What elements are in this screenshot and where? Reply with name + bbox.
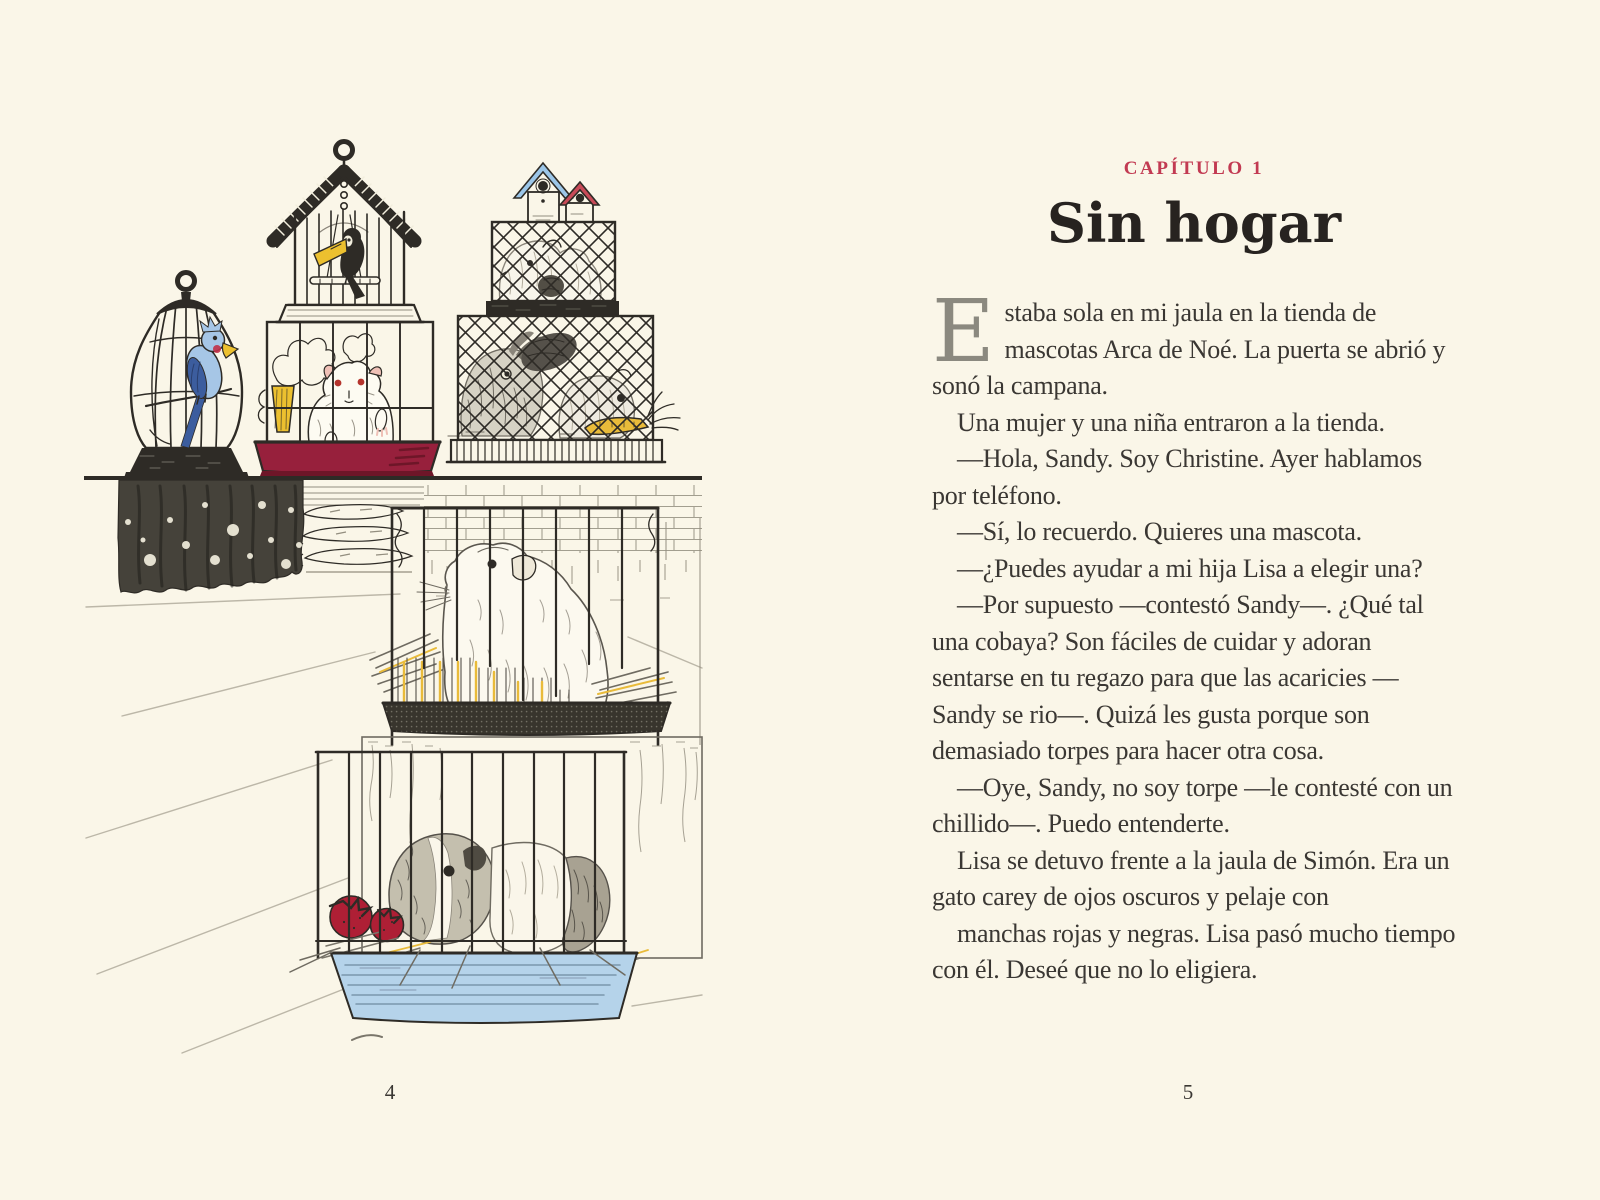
chapter-title: Sin hogar	[932, 194, 1456, 253]
paragraph: —¿Puedes ayudar a mi hija Lisa a elegir …	[932, 551, 1456, 588]
guinea-pig-cage-bottom	[290, 752, 648, 1040]
paragraph: —Hola, Sandy. Soy Christine. Ayer hablam…	[932, 441, 1456, 514]
chapter-page: CAPÍTULO 1 Sin hogar Estaba sola en mi j…	[932, 150, 1456, 989]
birdhouses	[514, 163, 599, 222]
curtain	[118, 480, 304, 593]
body-text: Estaba sola en mi jaula en la tienda de …	[932, 295, 1456, 989]
page-number-right: 5	[1158, 1080, 1218, 1105]
page-number-left: 4	[360, 1080, 420, 1105]
paragraph: Estaba sola en mi jaula en la tienda de …	[932, 295, 1456, 405]
paragraph: manchas rojas y negras. Lisa pasó mucho …	[932, 916, 1456, 989]
drop-cap: E	[932, 300, 995, 368]
paragraph: —Sí, lo recuerdo. Quieres una mascota.	[932, 514, 1456, 551]
rabbit-cages	[447, 163, 680, 462]
paragraph: —Por supuesto —contestó Sandy—. ¿Qué tal…	[932, 587, 1456, 770]
paragraph: Lisa se detuvo frente a la jaula de Simó…	[932, 843, 1456, 916]
chapter-kicker: CAPÍTULO 1	[932, 158, 1456, 180]
parrot-cage	[124, 273, 249, 479]
stacked-bedding	[299, 505, 413, 572]
book-spread: CAPÍTULO 1 Sin hogar Estaba sola en mi j…	[0, 0, 1600, 1200]
toucan-cage	[273, 142, 424, 323]
paragraph: Una mujer y una niña entraron a la tiend…	[932, 405, 1456, 442]
paragraph: —Oye, Sandy, no soy torpe —le contesté c…	[932, 770, 1456, 843]
pet-shop-illustration	[80, 115, 705, 1060]
hamster-cage	[255, 322, 440, 476]
